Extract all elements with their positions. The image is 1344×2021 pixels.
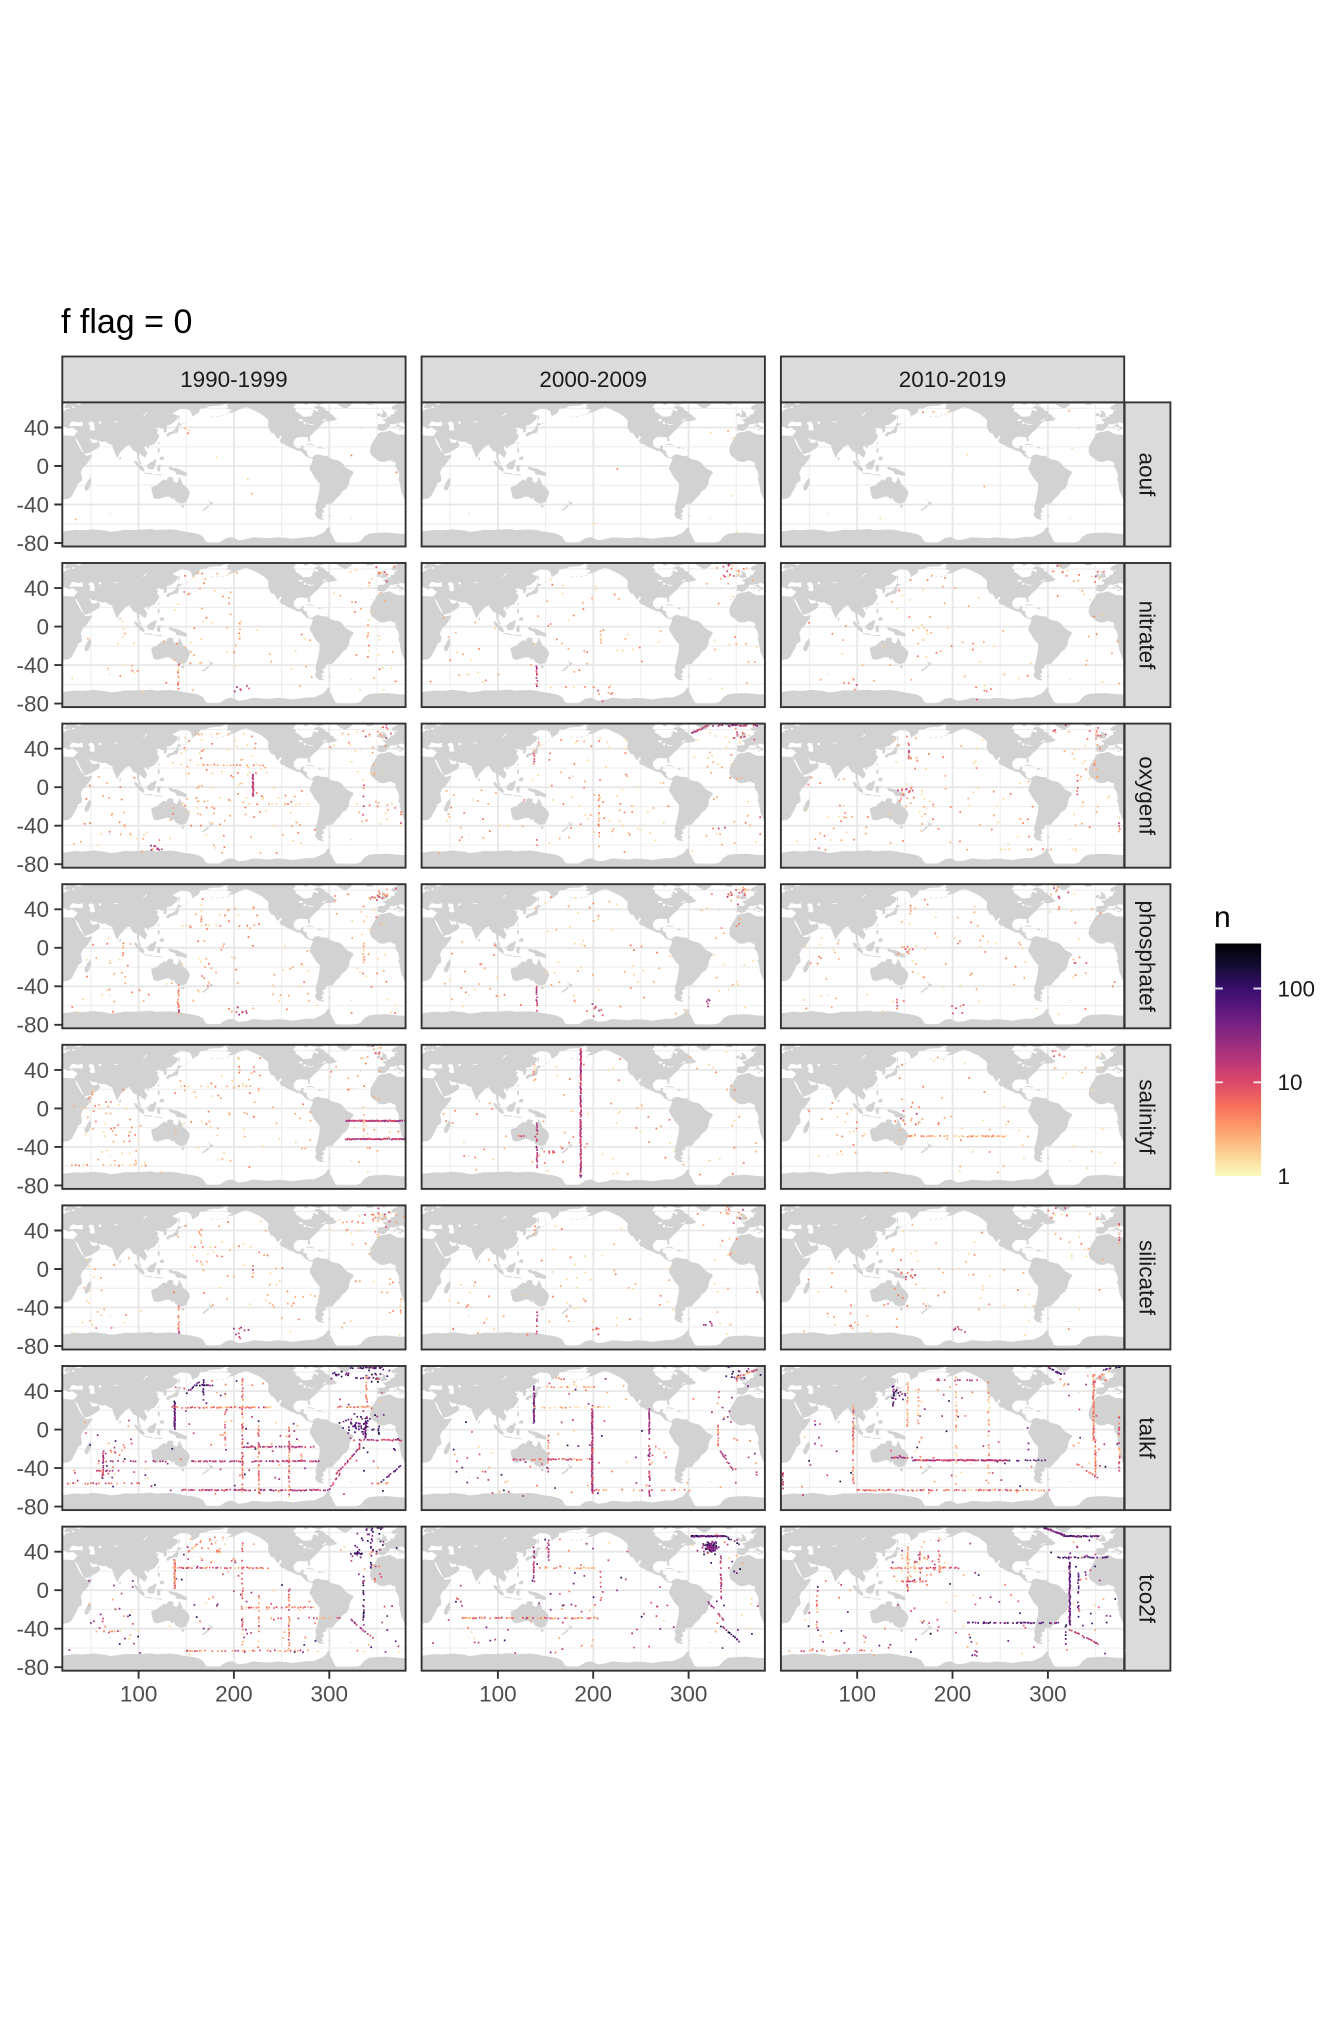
svg-text:40: 40 <box>24 1218 49 1243</box>
svg-text:100: 100 <box>479 1682 517 1707</box>
svg-text:200: 200 <box>215 1682 253 1707</box>
svg-text:silicatef: silicatef <box>1134 1240 1159 1316</box>
svg-text:300: 300 <box>670 1682 708 1707</box>
svg-text:-40: -40 <box>16 653 49 678</box>
svg-text:-80: -80 <box>16 531 49 556</box>
svg-text:tco2f: tco2f <box>1134 1574 1159 1624</box>
svg-text:40: 40 <box>24 1540 49 1565</box>
svg-text:oxygenf: oxygenf <box>1134 756 1159 836</box>
svg-text:40: 40 <box>24 415 49 440</box>
svg-text:0: 0 <box>36 775 49 800</box>
svg-text:-80: -80 <box>16 1494 49 1519</box>
svg-text:40: 40 <box>24 897 49 922</box>
svg-text:-40: -40 <box>16 974 49 999</box>
svg-text:0: 0 <box>36 1096 49 1121</box>
svg-text:40: 40 <box>24 1058 49 1083</box>
svg-text:-40: -40 <box>16 814 49 839</box>
svg-text:-80: -80 <box>16 1655 49 1680</box>
svg-text:-80: -80 <box>16 691 49 716</box>
svg-text:0: 0 <box>36 454 49 479</box>
svg-text:-40: -40 <box>16 1456 49 1481</box>
svg-text:200: 200 <box>934 1682 972 1707</box>
svg-text:100: 100 <box>120 1682 158 1707</box>
svg-text:200: 200 <box>574 1682 612 1707</box>
svg-text:40: 40 <box>24 576 49 601</box>
svg-text:40: 40 <box>24 737 49 762</box>
svg-text:phosphatef: phosphatef <box>1134 901 1159 1013</box>
svg-text:0: 0 <box>36 1257 49 1282</box>
svg-text:-40: -40 <box>16 1135 49 1160</box>
svg-text:n: n <box>1214 901 1231 934</box>
svg-text:-80: -80 <box>16 1173 49 1198</box>
svg-text:-40: -40 <box>16 1295 49 1320</box>
svg-text:-40: -40 <box>16 492 49 517</box>
svg-text:300: 300 <box>311 1682 349 1707</box>
svg-text:300: 300 <box>1029 1682 1067 1707</box>
svg-text:10: 10 <box>1278 1070 1303 1095</box>
svg-text:-40: -40 <box>16 1617 49 1642</box>
svg-text:salinityf: salinityf <box>1134 1079 1159 1155</box>
svg-text:0: 0 <box>36 1417 49 1442</box>
svg-text:-80: -80 <box>16 1334 49 1359</box>
svg-text:2010-2019: 2010-2019 <box>899 367 1007 392</box>
svg-text:2000-2009: 2000-2009 <box>539 367 647 392</box>
svg-text:f flag = 0: f flag = 0 <box>61 303 192 341</box>
svg-text:1: 1 <box>1278 1164 1291 1189</box>
svg-text:0: 0 <box>36 614 49 639</box>
svg-text:0: 0 <box>36 936 49 961</box>
svg-text:nitratef: nitratef <box>1134 601 1159 671</box>
svg-text:100: 100 <box>838 1682 876 1707</box>
svg-text:40: 40 <box>24 1379 49 1404</box>
svg-text:1990-1999: 1990-1999 <box>180 367 288 392</box>
svg-text:talkf: talkf <box>1134 1417 1159 1459</box>
svg-text:aouf: aouf <box>1134 453 1159 498</box>
svg-text:-80: -80 <box>16 852 49 877</box>
svg-text:0: 0 <box>36 1578 49 1603</box>
svg-text:100: 100 <box>1278 976 1316 1001</box>
svg-text:-80: -80 <box>16 1013 49 1038</box>
